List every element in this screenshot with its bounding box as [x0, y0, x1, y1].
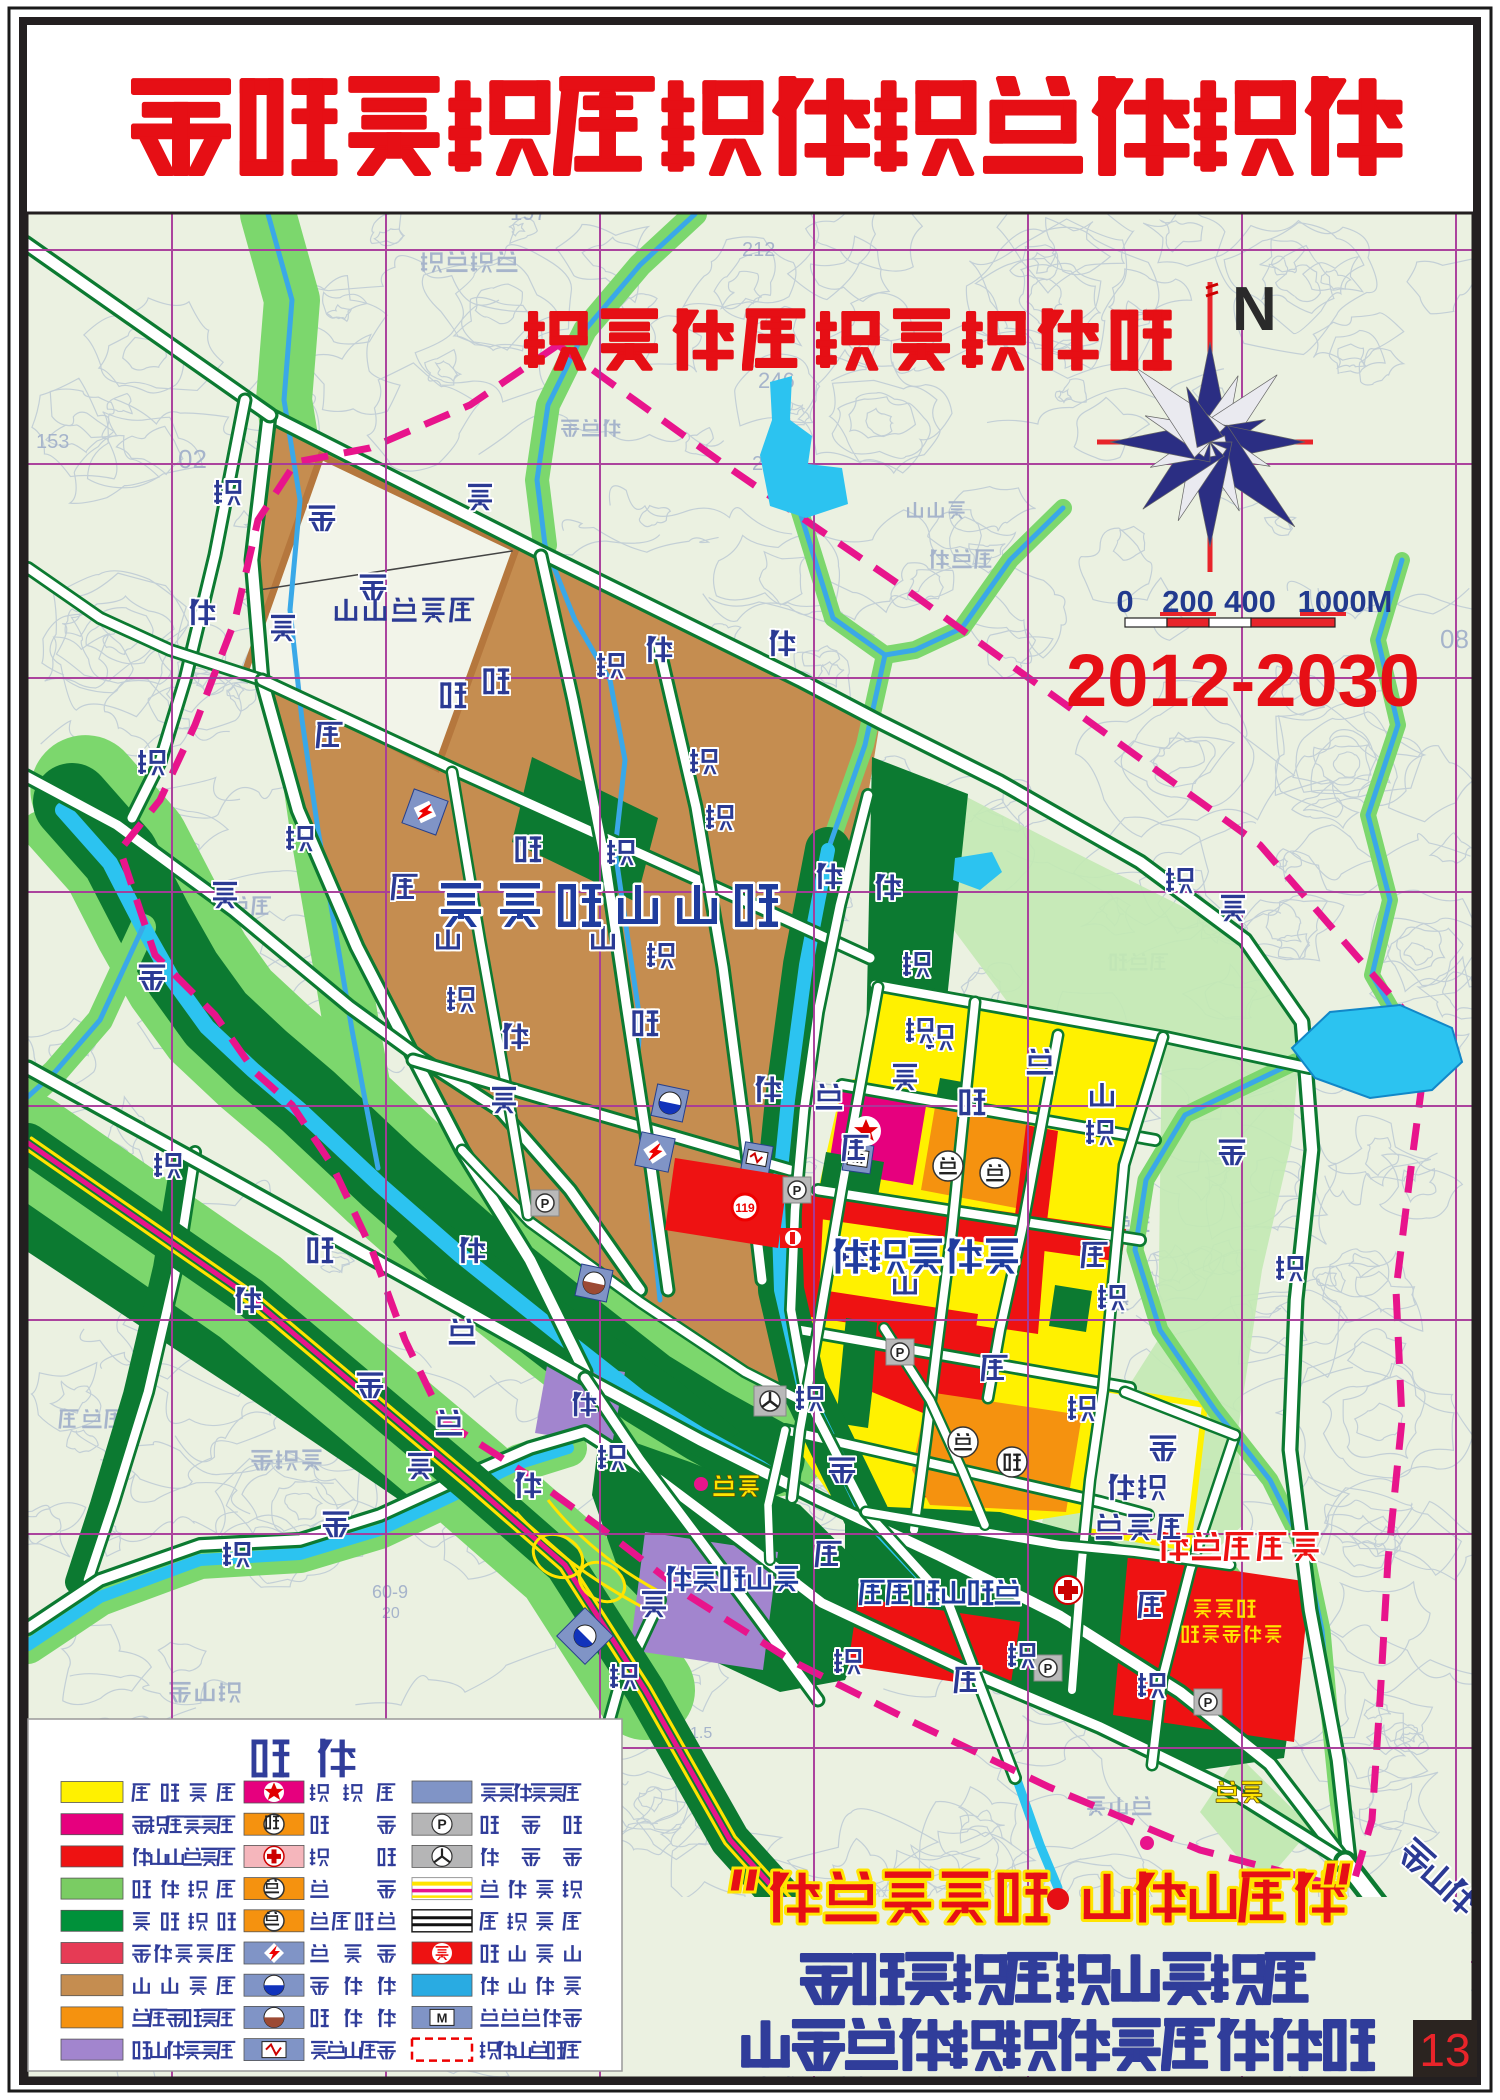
svg-text:2012-2030: 2012-2030: [1066, 639, 1420, 722]
svg-text:P: P: [896, 1345, 905, 1360]
svg-text:60-9: 60-9: [372, 1582, 408, 1602]
svg-text:13: 13: [1419, 2024, 1470, 2076]
svg-text:119: 119: [735, 1201, 755, 1215]
svg-text:02: 02: [178, 444, 207, 474]
svg-text:400: 400: [1224, 584, 1276, 619]
svg-text:P: P: [437, 1816, 446, 1832]
svg-text:P: P: [1204, 1695, 1213, 1710]
svg-text:P: P: [1044, 1661, 1053, 1676]
svg-text:M: M: [437, 2010, 448, 2025]
svg-text:20: 20: [382, 1605, 400, 1622]
svg-text:0: 0: [1116, 584, 1133, 619]
svg-text:153: 153: [36, 431, 69, 453]
svg-text:P: P: [541, 1196, 550, 1211]
svg-text:N: N: [1232, 275, 1277, 344]
svg-text:P: P: [793, 1183, 802, 1198]
svg-text:08: 08: [1440, 624, 1469, 654]
